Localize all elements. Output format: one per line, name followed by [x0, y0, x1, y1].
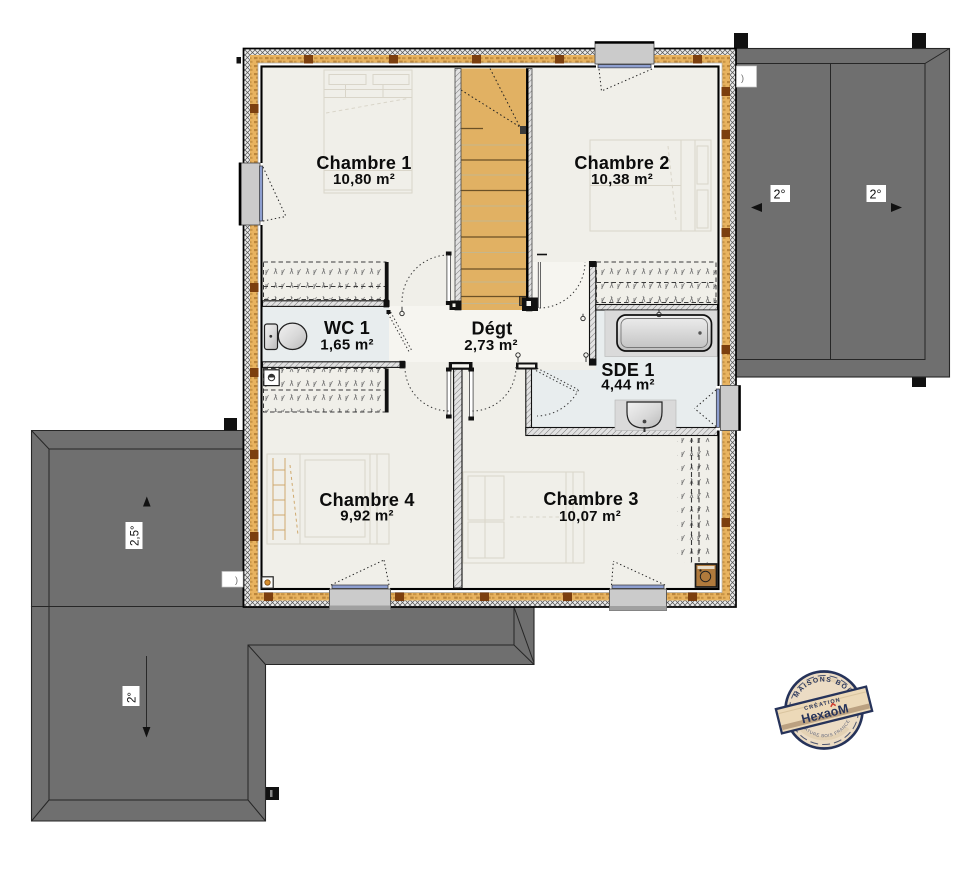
svg-text:Chambre 1: Chambre 1	[316, 153, 411, 173]
svg-text:9,92 m²: 9,92 m²	[340, 508, 393, 525]
svg-text:Dégt: Dégt	[472, 319, 513, 339]
svg-text:10,80 m²: 10,80 m²	[333, 171, 395, 188]
svg-text:2°: 2°	[127, 692, 139, 703]
svg-text:2°: 2°	[774, 188, 786, 202]
svg-text:1,65 m²: 1,65 m²	[320, 337, 373, 354]
svg-text:Chambre 3: Chambre 3	[543, 489, 638, 509]
svg-text:2,73 m²: 2,73 m²	[464, 337, 517, 354]
svg-text:2,5°: 2,5°	[130, 525, 142, 546]
svg-text:10,07 m²: 10,07 m²	[559, 508, 621, 525]
svg-text:10,38 m²: 10,38 m²	[591, 171, 653, 188]
svg-text:WC 1: WC 1	[324, 318, 370, 338]
svg-text:Chambre 2: Chambre 2	[574, 153, 669, 173]
svg-text:): )	[235, 575, 238, 585]
svg-text:2°: 2°	[870, 188, 882, 202]
svg-text:4,44 m²: 4,44 m²	[601, 377, 654, 394]
svg-text:): )	[741, 73, 744, 83]
